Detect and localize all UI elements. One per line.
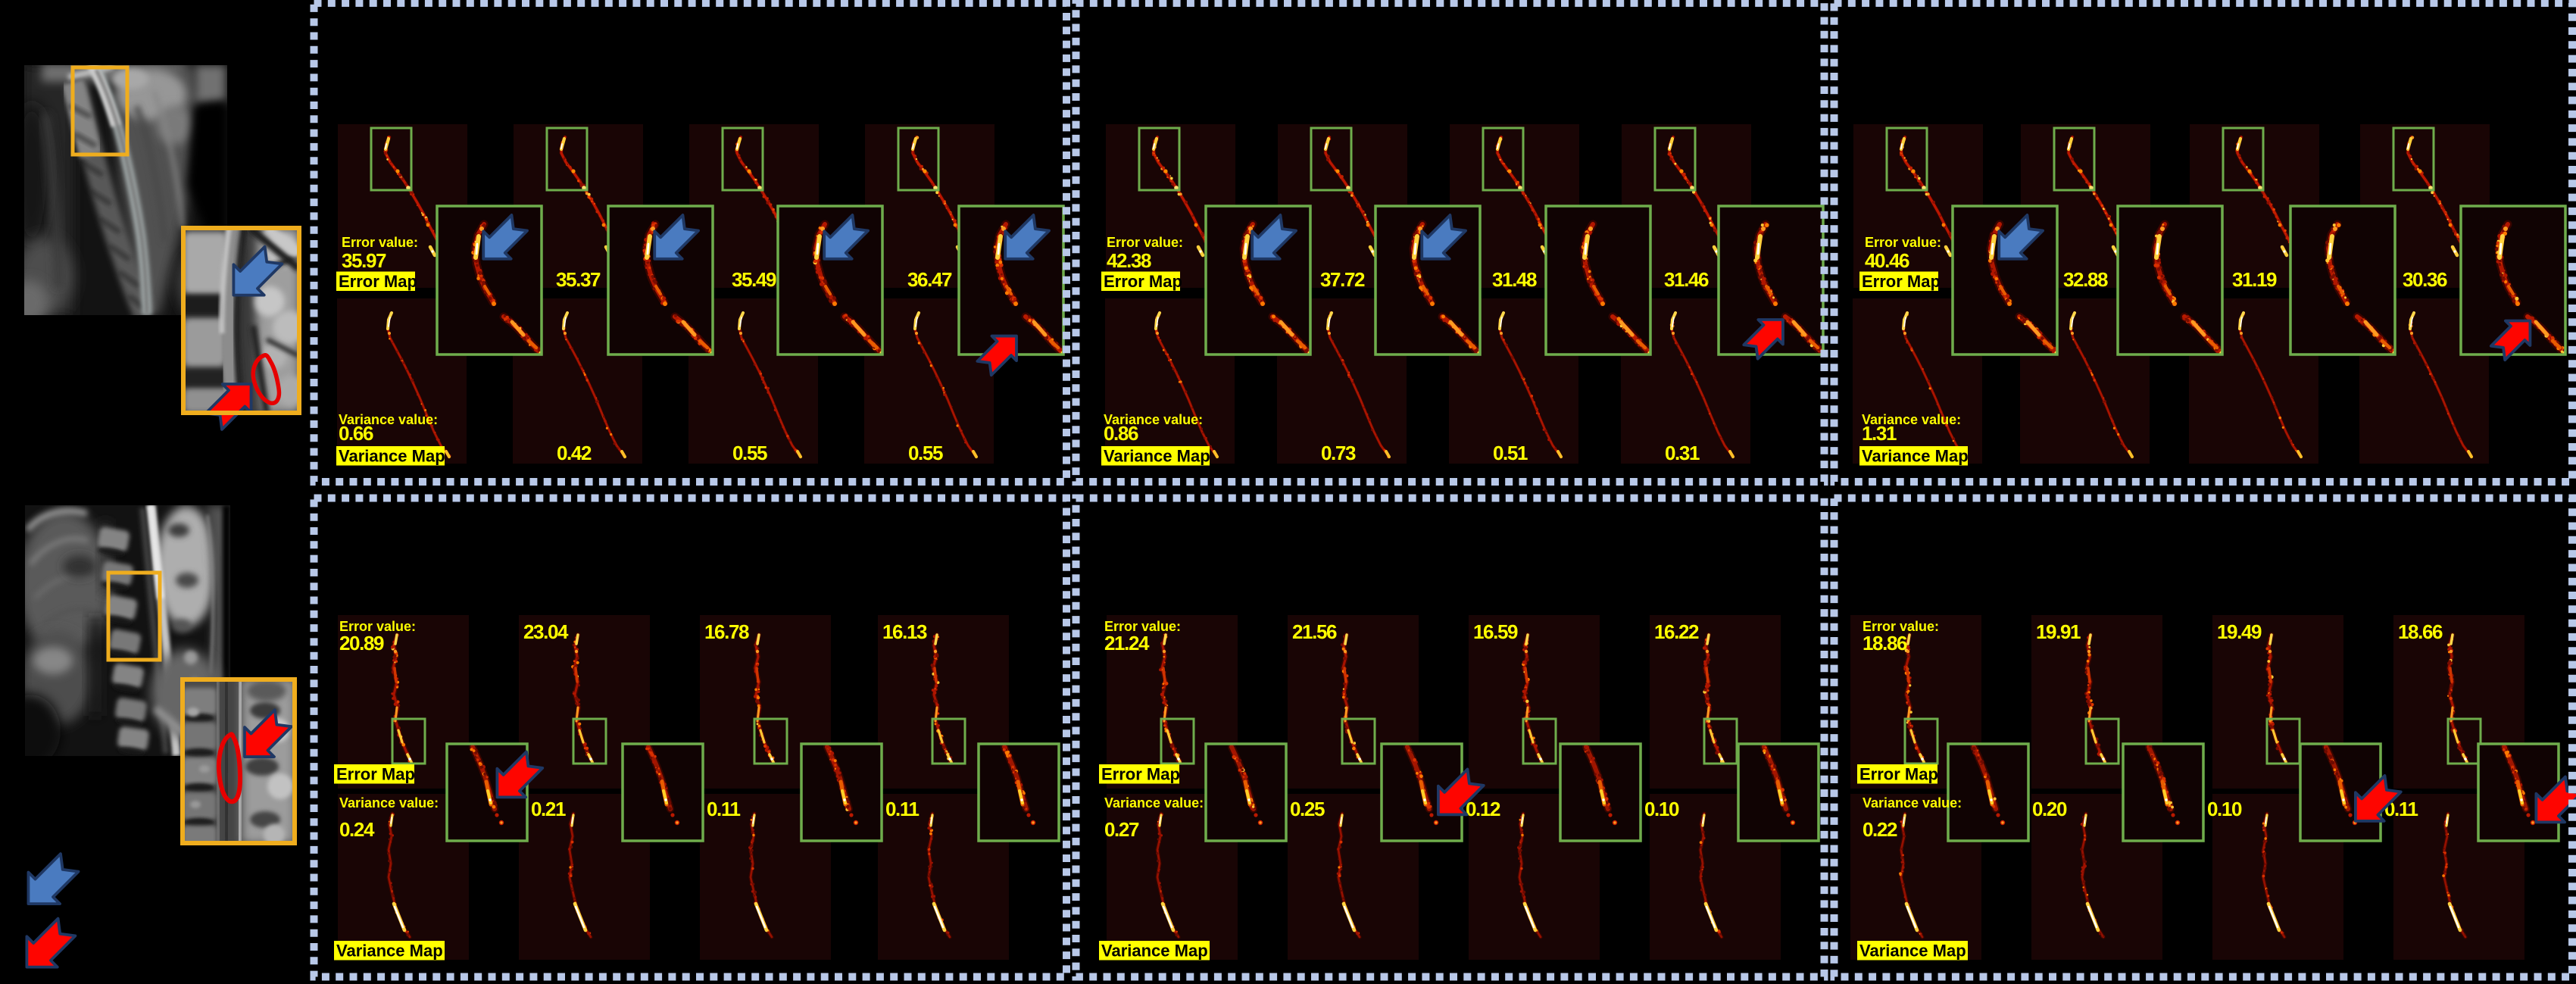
svg-text:Variance Map: Variance Map (339, 447, 445, 466)
svg-text:0.27: 0.27 (1104, 818, 1139, 841)
svg-text:16.22: 16.22 (1654, 620, 1699, 643)
svg-text:36.47: 36.47 (907, 268, 952, 291)
svg-text:Error Map: Error Map (1104, 272, 1182, 291)
svg-text:0.10: 0.10 (1644, 798, 1679, 820)
svg-text:0.11: 0.11 (885, 798, 920, 820)
svg-text:21.56: 21.56 (1292, 620, 1337, 643)
svg-text:35.97: 35.97 (342, 249, 386, 272)
svg-text:0.55: 0.55 (908, 442, 943, 464)
svg-text:21.24: 21.24 (1104, 632, 1150, 654)
svg-text:32.88: 32.88 (2063, 268, 2108, 291)
svg-text:18.66: 18.66 (2398, 620, 2443, 643)
svg-text:16.59: 16.59 (1473, 620, 1518, 643)
svg-text:18.86: 18.86 (1863, 632, 1907, 654)
svg-text:35.37: 35.37 (556, 268, 601, 291)
svg-text:Error Map: Error Map (1101, 765, 1180, 784)
svg-text:0.20: 0.20 (2032, 798, 2067, 820)
svg-text:1.31: 1.31 (1862, 422, 1897, 445)
svg-text:0.22: 0.22 (1863, 818, 1897, 841)
svg-text:0.11: 0.11 (707, 798, 741, 820)
svg-text:16.13: 16.13 (882, 620, 927, 643)
svg-text:31.48: 31.48 (1492, 268, 1537, 291)
svg-text:0.12: 0.12 (1466, 798, 1500, 820)
svg-text:42.38: 42.38 (1107, 249, 1151, 272)
svg-text:30.36: 30.36 (2403, 268, 2447, 291)
svg-text:Variance Map: Variance Map (1104, 447, 1210, 466)
svg-text:Error value:: Error value: (1865, 235, 1941, 250)
svg-text:Variance Map: Variance Map (1859, 942, 1966, 961)
svg-text:0.25: 0.25 (1290, 798, 1325, 820)
svg-text:0.42: 0.42 (557, 442, 592, 464)
svg-text:20.89: 20.89 (339, 632, 384, 654)
svg-text:Error value:: Error value: (1107, 235, 1183, 250)
svg-text:0.66: 0.66 (339, 422, 373, 445)
svg-text:Error Map: Error Map (1859, 765, 1938, 784)
svg-text:Variance Map: Variance Map (1101, 942, 1208, 961)
svg-text:0.51: 0.51 (1493, 442, 1528, 464)
svg-text:0.55: 0.55 (732, 442, 767, 464)
svg-text:31.46: 31.46 (1664, 268, 1709, 291)
svg-text:23.04: 23.04 (523, 620, 569, 643)
svg-text:19.49: 19.49 (2217, 620, 2262, 643)
svg-text:Variance value:: Variance value: (1104, 795, 1204, 811)
svg-text:Error Map: Error Map (339, 272, 417, 291)
svg-text:0.73: 0.73 (1321, 442, 1356, 464)
svg-text:31.19: 31.19 (2232, 268, 2277, 291)
svg-text:16.78: 16.78 (704, 620, 749, 643)
svg-text:Error Map: Error Map (1862, 272, 1941, 291)
svg-text:Variance value:: Variance value: (1863, 795, 1962, 811)
svg-text:0.10: 0.10 (2207, 798, 2242, 820)
svg-text:0.31: 0.31 (1665, 442, 1700, 464)
svg-text:Error value:: Error value: (342, 235, 418, 250)
svg-text:19.91: 19.91 (2036, 620, 2081, 643)
svg-text:37.72: 37.72 (1320, 268, 1365, 291)
svg-text:Error Map: Error Map (336, 765, 415, 784)
svg-text:Variance Map: Variance Map (1862, 447, 1969, 466)
svg-text:35.49: 35.49 (732, 268, 776, 291)
svg-text:0.86: 0.86 (1104, 422, 1138, 445)
svg-text:Variance value:: Variance value: (339, 795, 439, 811)
svg-text:40.46: 40.46 (1865, 249, 1909, 272)
svg-text:Variance Map: Variance Map (336, 942, 443, 961)
svg-text:0.24: 0.24 (339, 818, 375, 841)
svg-text:0.21: 0.21 (531, 798, 566, 820)
